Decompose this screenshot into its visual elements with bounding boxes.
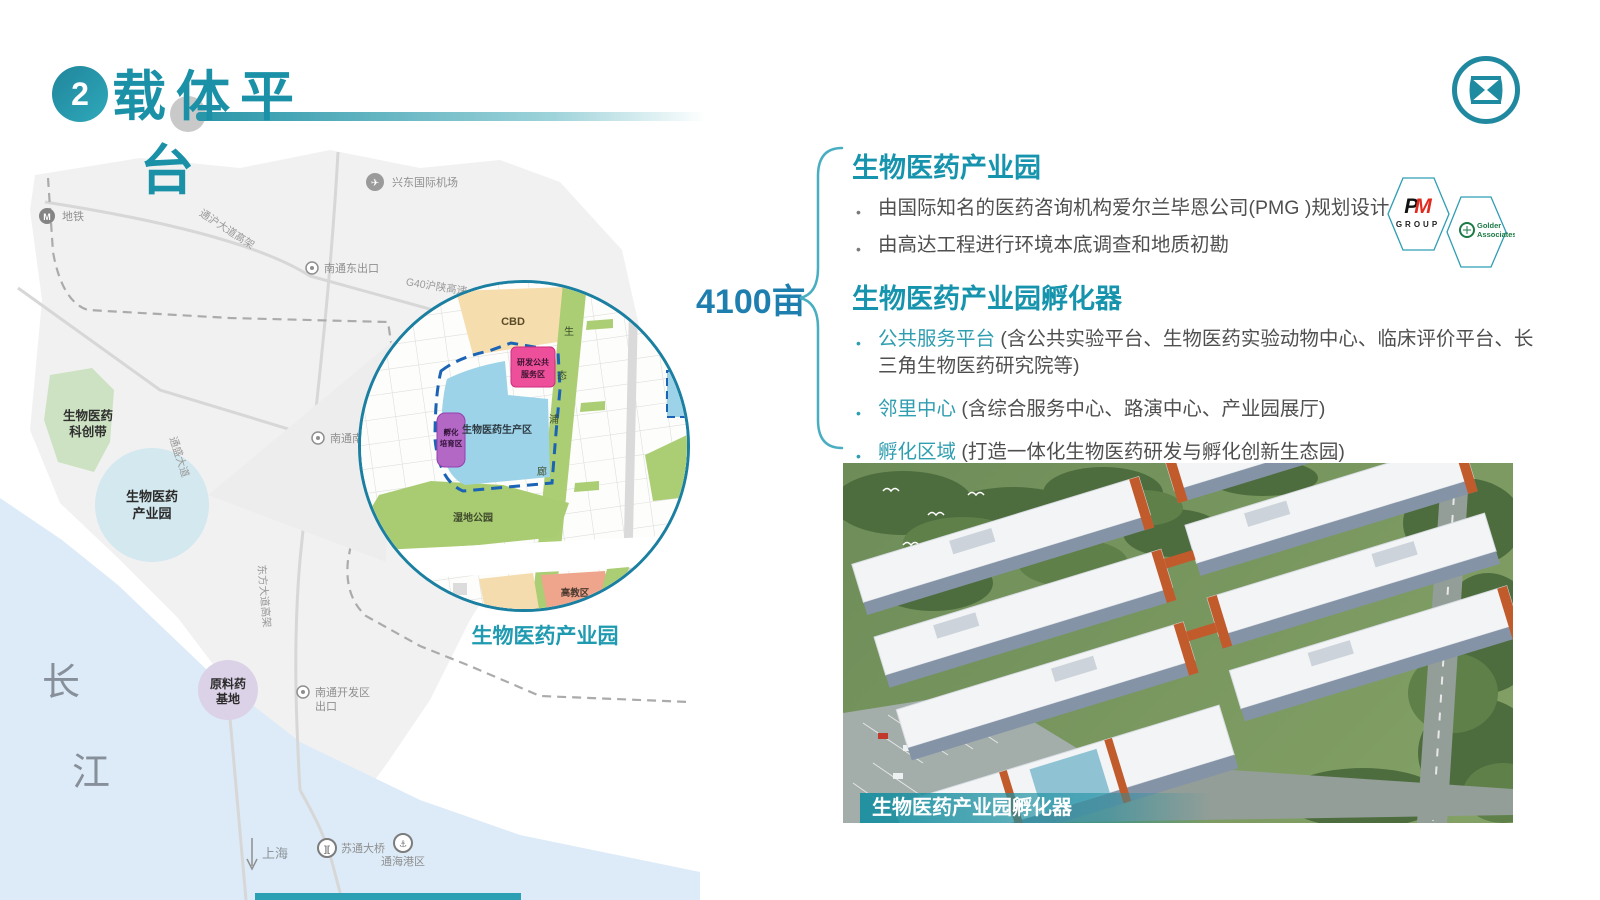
slide: M 地铁 ✈ 兴东国际机场 南通东出口 南通南出口 南通开发区 出口 ][ 苏通… (0, 0, 1600, 900)
svg-text:态: 态 (557, 369, 567, 382)
exit-devzone-label-1: 南通开发区 (315, 685, 370, 699)
slide-number-badge: 2 (52, 66, 108, 122)
bullet-dot (852, 396, 878, 423)
bullet-dot (852, 439, 878, 466)
biopark-circle (95, 448, 209, 562)
svg-text:浦: 浦 (549, 413, 559, 426)
airport-label: 兴东国际机场 (392, 175, 458, 189)
svg-text:廊: 廊 (537, 465, 547, 478)
port-label: 通海港区 (381, 854, 425, 868)
yangtze-char-1: 长 (42, 662, 80, 704)
inset-higher-ed-label: 高教区 (561, 587, 590, 599)
incubator-bullet-2: 邻里中心 (含综合服务中心、路演中心、产业园展厅) (852, 396, 1552, 423)
rendering-caption: 生物医药产业园孵化器 (860, 793, 1212, 823)
incubator-bullet-3-text: 孵化区域 (打造一体化生物医药研发与孵化创新生态园) (878, 439, 1345, 466)
incubator-bullet-3: 孵化区域 (打造一体化生物医药研发与孵化创新生态园) (852, 439, 1552, 466)
golder-logo: Golder Associates (1447, 197, 1515, 267)
metro-icon-glyph: M (43, 212, 51, 222)
bridge-icon: ][ (324, 844, 330, 854)
svg-text:培育区: 培育区 (440, 438, 463, 448)
campus-rendering: 生物医药产业园孵化器 (843, 463, 1513, 823)
inset-production-label: 生物医药生产区 (462, 423, 532, 436)
incubator-bullet-1: 公共服务平台 (含公共实验平台、生物医药实验动物中心、临床评价平台、长三角生物医… (852, 326, 1552, 380)
svg-text:生: 生 (564, 325, 574, 338)
bullet-dot (852, 195, 878, 222)
brace (794, 146, 846, 452)
pm-logo-text: PM (1404, 195, 1432, 218)
section-incubator-heading: 生物医药产业园孵化器 (852, 277, 1552, 316)
incubator-bullet-1-term: 公共服务平台 (878, 328, 995, 350)
incubator-bullet-2-term: 邻里中心 (878, 398, 956, 420)
area-size-label: 4100亩 (696, 274, 806, 323)
svg-text:孵化: 孵化 (443, 427, 459, 437)
airport-icon-glyph: ✈ (371, 178, 379, 189)
inset-wetland-label: 湿地公园 (453, 511, 493, 524)
inset-caption: 生物医药产业园 (430, 620, 660, 650)
svg-text:产业园: 产业园 (132, 506, 171, 521)
svg-text:科创带: 科创带 (69, 424, 107, 439)
pm-group-text: GROUP (1396, 220, 1440, 229)
bottom-teal-strip (255, 893, 521, 900)
golder-text-1: Golder (1477, 221, 1501, 230)
section-incubator: 生物医药产业园孵化器 公共服务平台 (含公共实验平台、生物医药实验动物中心、临床… (852, 277, 1552, 466)
exit-east-label: 南通东出口 (324, 261, 379, 275)
page-title-line1: 载体平 (112, 52, 304, 131)
pm-group-logo: PM GROUP (1388, 178, 1449, 250)
golder-text-2: Associates (1477, 230, 1515, 239)
anchor-icon: ⚓ (399, 839, 407, 849)
bullet-dot (852, 232, 878, 259)
park-bullet-1-text: 由国际知名的医药咨询机构爱尔兰毕恩公司(PMG )规划设计 (878, 195, 1389, 222)
bridge-label: 苏通大桥 (341, 841, 385, 855)
shanghai-label: 上海 (262, 846, 288, 861)
inset-cbd-label: CBD (501, 316, 525, 328)
svg-text:服务区: 服务区 (521, 369, 545, 379)
inset-rnd-service-box (511, 347, 555, 387)
metro-label: 地铁 (62, 210, 84, 223)
bullet-dot (852, 326, 878, 380)
incubator-bullet-2-text: 邻里中心 (含综合服务中心、路演中心、产业园展厅) (878, 396, 1325, 423)
svg-text:生物医药: 生物医药 (126, 489, 178, 504)
incubator-bullet-2-desc: (含综合服务中心、路演中心、产业园展厅) (956, 398, 1325, 420)
page-title-line2: 台 (140, 126, 194, 205)
exit-devzone-label-2: 出口 (315, 699, 337, 713)
incubator-bullet-3-desc: (打造一体化生物医药研发与孵化创新生态园) (956, 441, 1345, 463)
svg-text:研发公共: 研发公共 (517, 357, 549, 367)
incubator-bullet-3-term: 孵化区域 (878, 441, 956, 463)
park-bullet-2-text: 由高达工程进行环境本底调查和地质初勘 (878, 232, 1229, 259)
partner-logos: PM GROUP Golder Associates (1385, 175, 1515, 270)
svg-text:生物医药: 生物医药 (63, 408, 114, 423)
corner-emblem (1452, 56, 1520, 124)
incubator-bullet-1-text: 公共服务平台 (含公共实验平台、生物医药实验动物中心、临床评价平台、长三角生物医… (878, 326, 1552, 380)
corner-emblem-icon (1466, 70, 1506, 110)
svg-text:原料药: 原料药 (210, 676, 246, 691)
yangtze-char-2: 江 (72, 752, 110, 794)
svg-text:基地: 基地 (215, 691, 240, 706)
park-inset-map: CBD 研发公共 服务区 生物医药生产区 孵化 培育区 湿地公园 高教区 生 态… (358, 280, 690, 612)
